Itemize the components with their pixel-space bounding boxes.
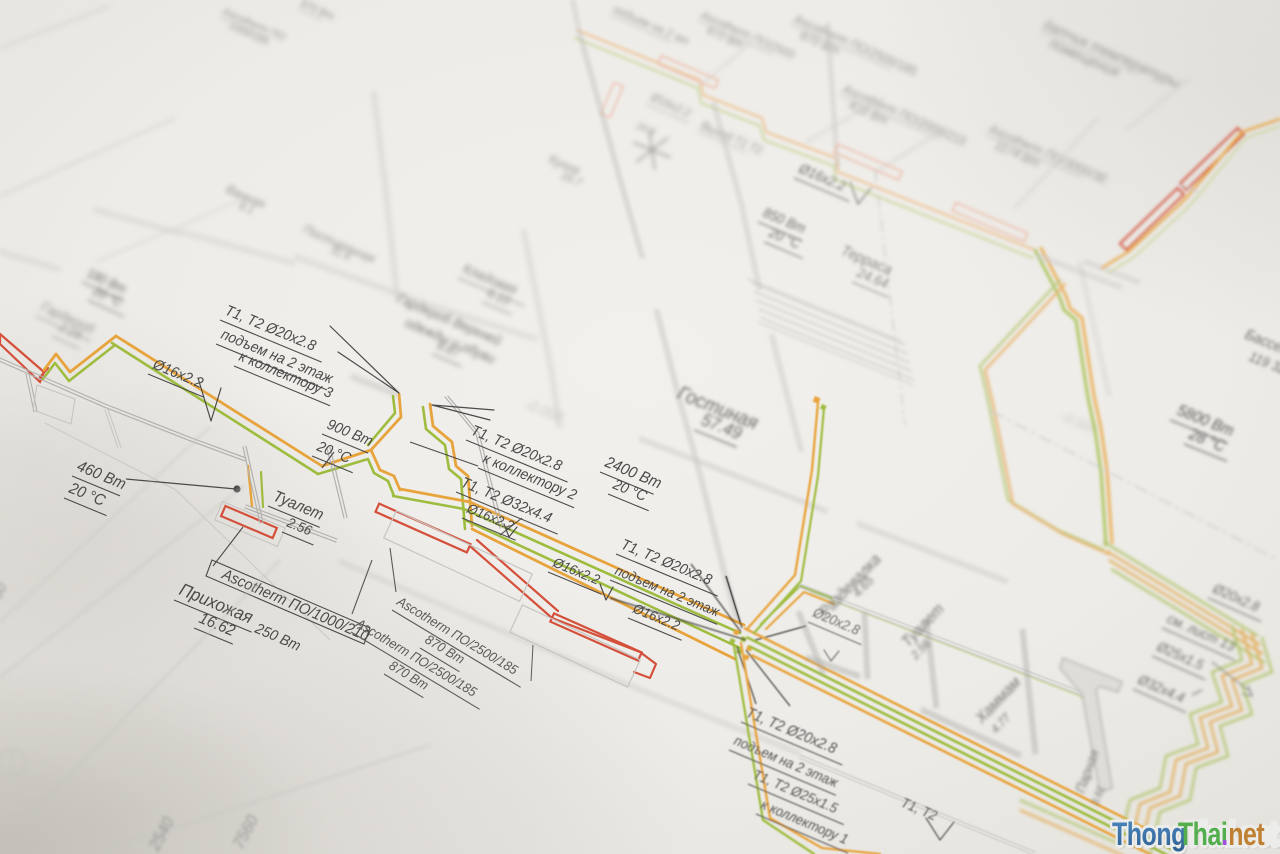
- svg-text:Thong: Thong: [1112, 817, 1186, 853]
- svg-text:Thai: Thai: [1178, 817, 1227, 853]
- svg-text:net: net: [1228, 817, 1265, 853]
- svg-text:.: .: [1221, 817, 1227, 853]
